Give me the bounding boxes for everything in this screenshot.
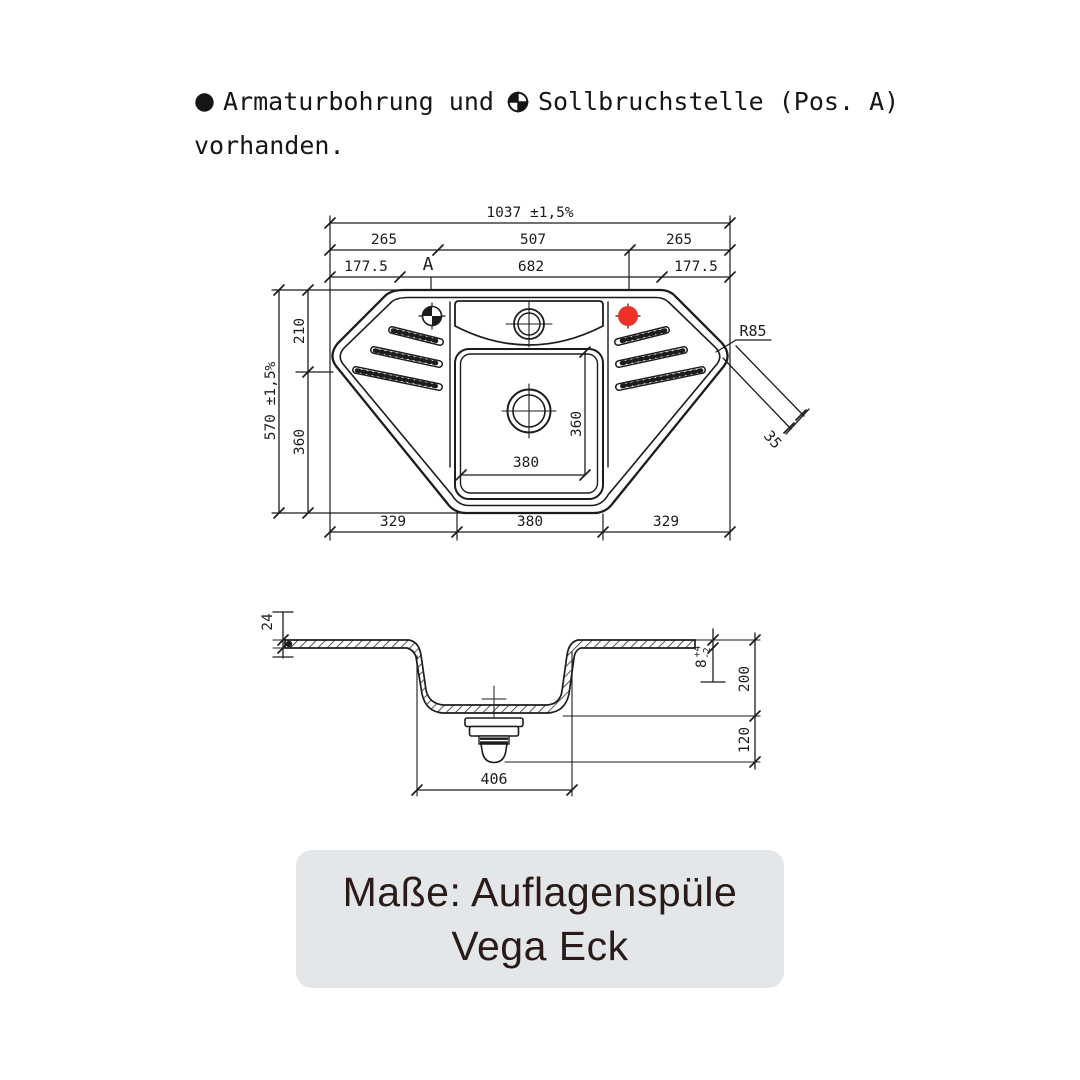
top-view-drawing: 1037 ±1,5% 265 507 265 177.5 682 177.5 A… xyxy=(263,205,809,540)
dim-rim-height: 24 xyxy=(260,613,276,631)
rim-width-dimension: 35 xyxy=(723,346,809,452)
dim-corner-radius: R85 xyxy=(739,322,766,340)
dim-drain-clearance: 120 xyxy=(737,727,753,753)
rim-height-dimension: 24 xyxy=(260,612,293,658)
dim-width-right: 265 xyxy=(666,232,692,248)
caption-line-1: Maße: Auflagenspüle xyxy=(343,865,738,919)
position-a-label: A xyxy=(423,254,434,275)
depth-dimensions: 200 120 xyxy=(737,633,760,769)
caption-line-2: Vega Eck xyxy=(451,919,628,973)
radius-callout: R85 xyxy=(716,322,771,352)
dim-width2-center: 682 xyxy=(518,259,544,275)
dim-bottom-left: 329 xyxy=(380,514,406,530)
dim-height-bottom: 360 xyxy=(292,429,308,455)
section-width-dimension: 406 xyxy=(412,770,577,795)
dim-height-top: 210 xyxy=(292,318,308,344)
dim-flange-thickness: 8+4-2 xyxy=(692,646,713,668)
dim-overall-height: 570 ±1,5% xyxy=(263,361,279,440)
dim-bottom-center: 380 xyxy=(517,514,543,530)
caption-card: Maße: Auflagenspüle Vega Eck xyxy=(296,850,784,988)
dim-width-center: 507 xyxy=(520,232,546,248)
dim-basin-width: 380 xyxy=(513,455,539,471)
dim-bottom-right: 329 xyxy=(653,514,679,530)
flange-thickness-dimension: 8+4-2 xyxy=(692,629,725,682)
dim-width-left: 265 xyxy=(371,232,397,248)
section-view-drawing: 24 8+4-2 200 120 406 xyxy=(260,612,760,796)
dim-overall-width: 1037 ±1,5% xyxy=(486,205,574,221)
dim-basin-height: 360 xyxy=(569,411,585,437)
section-material xyxy=(285,640,695,713)
drain-fitting xyxy=(465,686,523,763)
dim-rim-width: 35 xyxy=(760,427,785,452)
dim-basin-depth: 200 xyxy=(737,666,753,692)
dim-width2-right: 177.5 xyxy=(674,259,718,275)
dim-width2-left: 177.5 xyxy=(344,259,388,275)
dim-section-basin-width: 406 xyxy=(480,770,507,788)
